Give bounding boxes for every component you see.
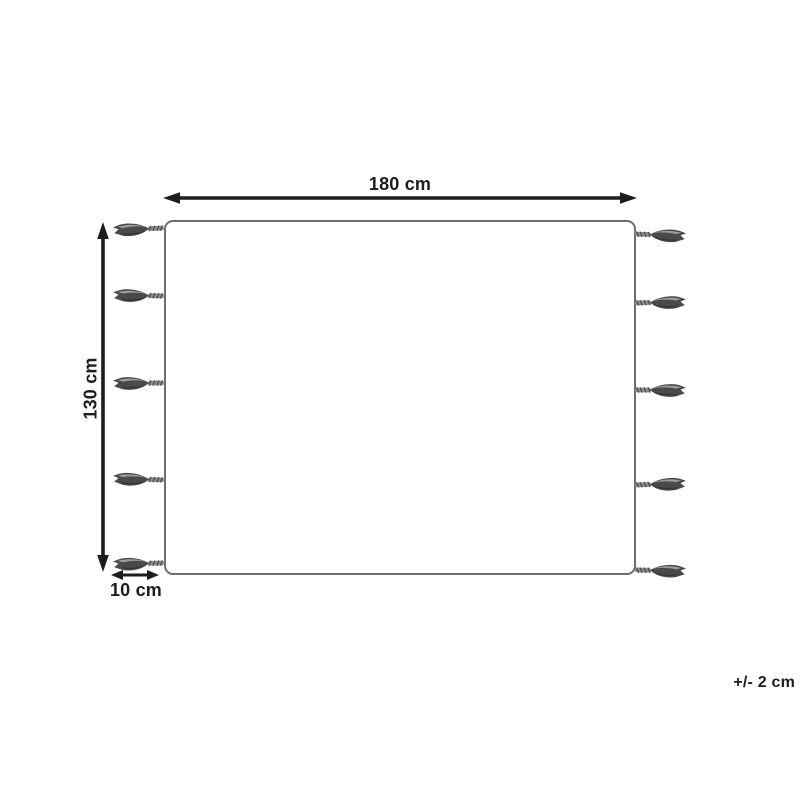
rug-outline <box>164 220 636 575</box>
width-dimension-arrow <box>163 191 637 205</box>
height-dimension-arrow <box>96 222 110 572</box>
tassel-length-label: 10 cm <box>104 580 168 601</box>
tassel <box>634 224 689 246</box>
tassel <box>634 473 689 495</box>
tassel <box>111 218 166 240</box>
tassel <box>634 560 688 581</box>
tassel <box>634 380 688 400</box>
rug-dimension-diagram: 180 cm 130 cm 10 cm +/- 2 cm <box>0 0 800 800</box>
tassel <box>111 468 166 490</box>
tassel <box>111 373 165 393</box>
tolerance-label: +/- 2 cm <box>700 674 795 692</box>
tassel <box>634 292 689 313</box>
tassel <box>111 285 166 306</box>
